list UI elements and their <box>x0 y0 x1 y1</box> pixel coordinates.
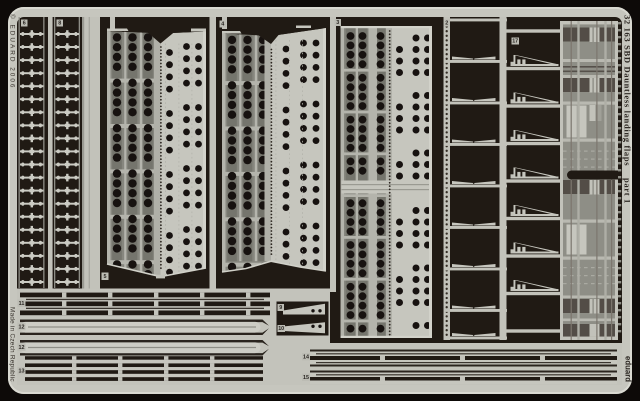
svg-text:2: 2 <box>445 21 448 27</box>
svg-text:17: 17 <box>512 39 518 45</box>
svg-text:part 1: part 1 <box>623 178 633 204</box>
svg-text:Made in Czech Republic: Made in Czech Republic <box>8 307 15 382</box>
svg-text:9: 9 <box>279 305 282 311</box>
svg-text:5: 5 <box>104 274 107 280</box>
svg-text:14: 14 <box>303 355 309 361</box>
svg-text:10: 10 <box>278 326 284 332</box>
svg-text:8: 8 <box>58 21 61 27</box>
svg-text:32 163 SBD Dauntless landing: 32 163 SBD Dauntless landing flaps <box>623 15 633 166</box>
svg-text:© EDUARD 2006: © EDUARD 2006 <box>8 14 16 89</box>
svg-text:12: 12 <box>19 325 25 331</box>
svg-text:13: 13 <box>19 369 25 375</box>
svg-text:6: 6 <box>23 21 26 27</box>
svg-text:3: 3 <box>336 20 339 26</box>
svg-text:4: 4 <box>221 22 224 28</box>
svg-text:15: 15 <box>303 375 309 381</box>
svg-text:11: 11 <box>19 301 25 307</box>
svg-text:eduard: eduard <box>623 356 632 382</box>
svg-text:12: 12 <box>19 345 25 351</box>
